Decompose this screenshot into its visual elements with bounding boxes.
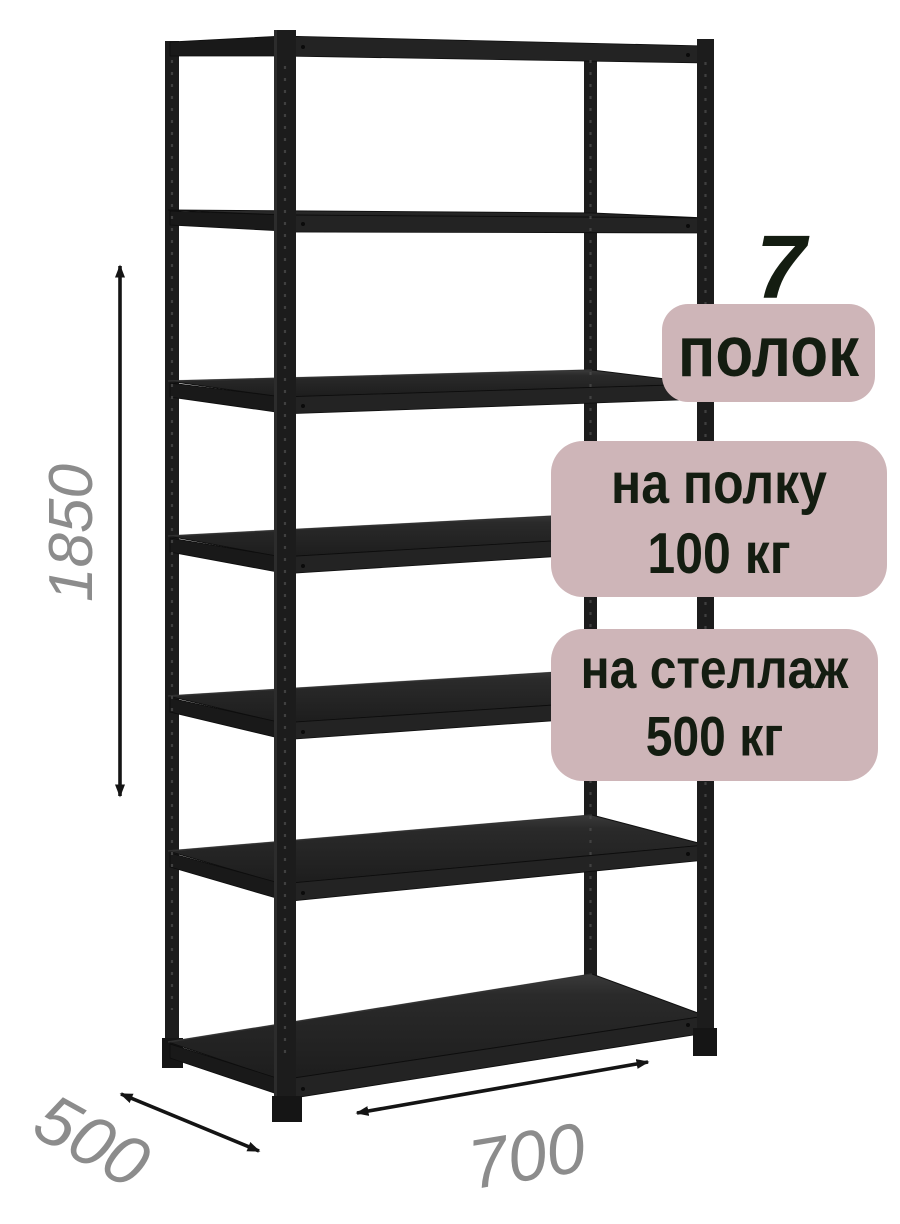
rack-shelf: [168, 370, 706, 414]
shelf-count-badge-label: полок: [678, 310, 859, 397]
per-shelf-load-badge: на полку 100 кг: [551, 441, 887, 597]
shelving-rack-illustration: [0, 0, 900, 1200]
per-shelf-load-text: на полку 100 кг: [611, 449, 827, 589]
per-rack-load-badge: на стеллаж 500 кг: [551, 629, 878, 781]
per-shelf-load-line1: на полку: [611, 449, 827, 519]
per-shelf-load-line2: 100 кг: [611, 519, 827, 589]
rack-shelf: [170, 36, 706, 63]
shelf-count-value: 7: [711, 218, 851, 318]
rack-shelf: [168, 210, 706, 233]
per-rack-load-line1: на стеллаж: [581, 638, 849, 705]
product-image: 1850 500 700 7 полок на полку 100 кг на …: [0, 0, 900, 1200]
per-rack-load-text: на стеллаж 500 кг: [581, 638, 849, 773]
height-dimension-label: 1850: [37, 382, 107, 684]
rack-shelf: [168, 815, 706, 902]
per-rack-load-line2: 500 кг: [581, 705, 849, 772]
shelf-count-badge: полок: [662, 304, 875, 402]
rack-shelf: [168, 974, 706, 1100]
